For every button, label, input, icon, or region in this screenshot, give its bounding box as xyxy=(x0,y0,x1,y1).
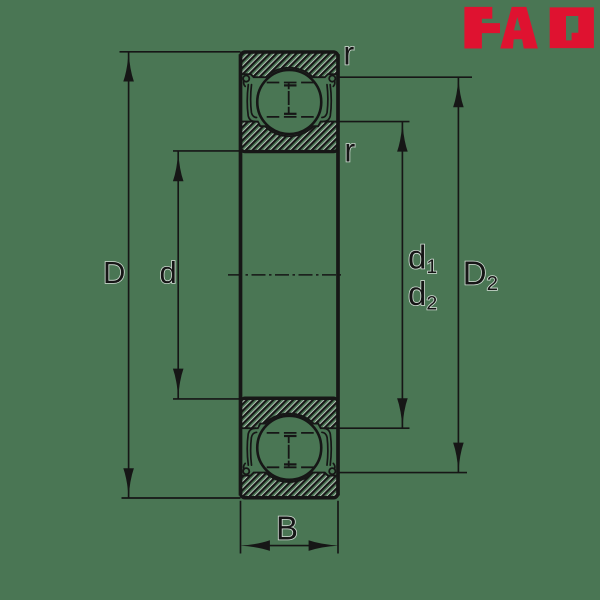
svg-text:r: r xyxy=(343,35,354,72)
svg-text:d: d xyxy=(160,255,177,290)
svg-text:r: r xyxy=(344,131,355,168)
svg-text:B: B xyxy=(276,510,298,547)
svg-text:D: D xyxy=(103,255,125,290)
